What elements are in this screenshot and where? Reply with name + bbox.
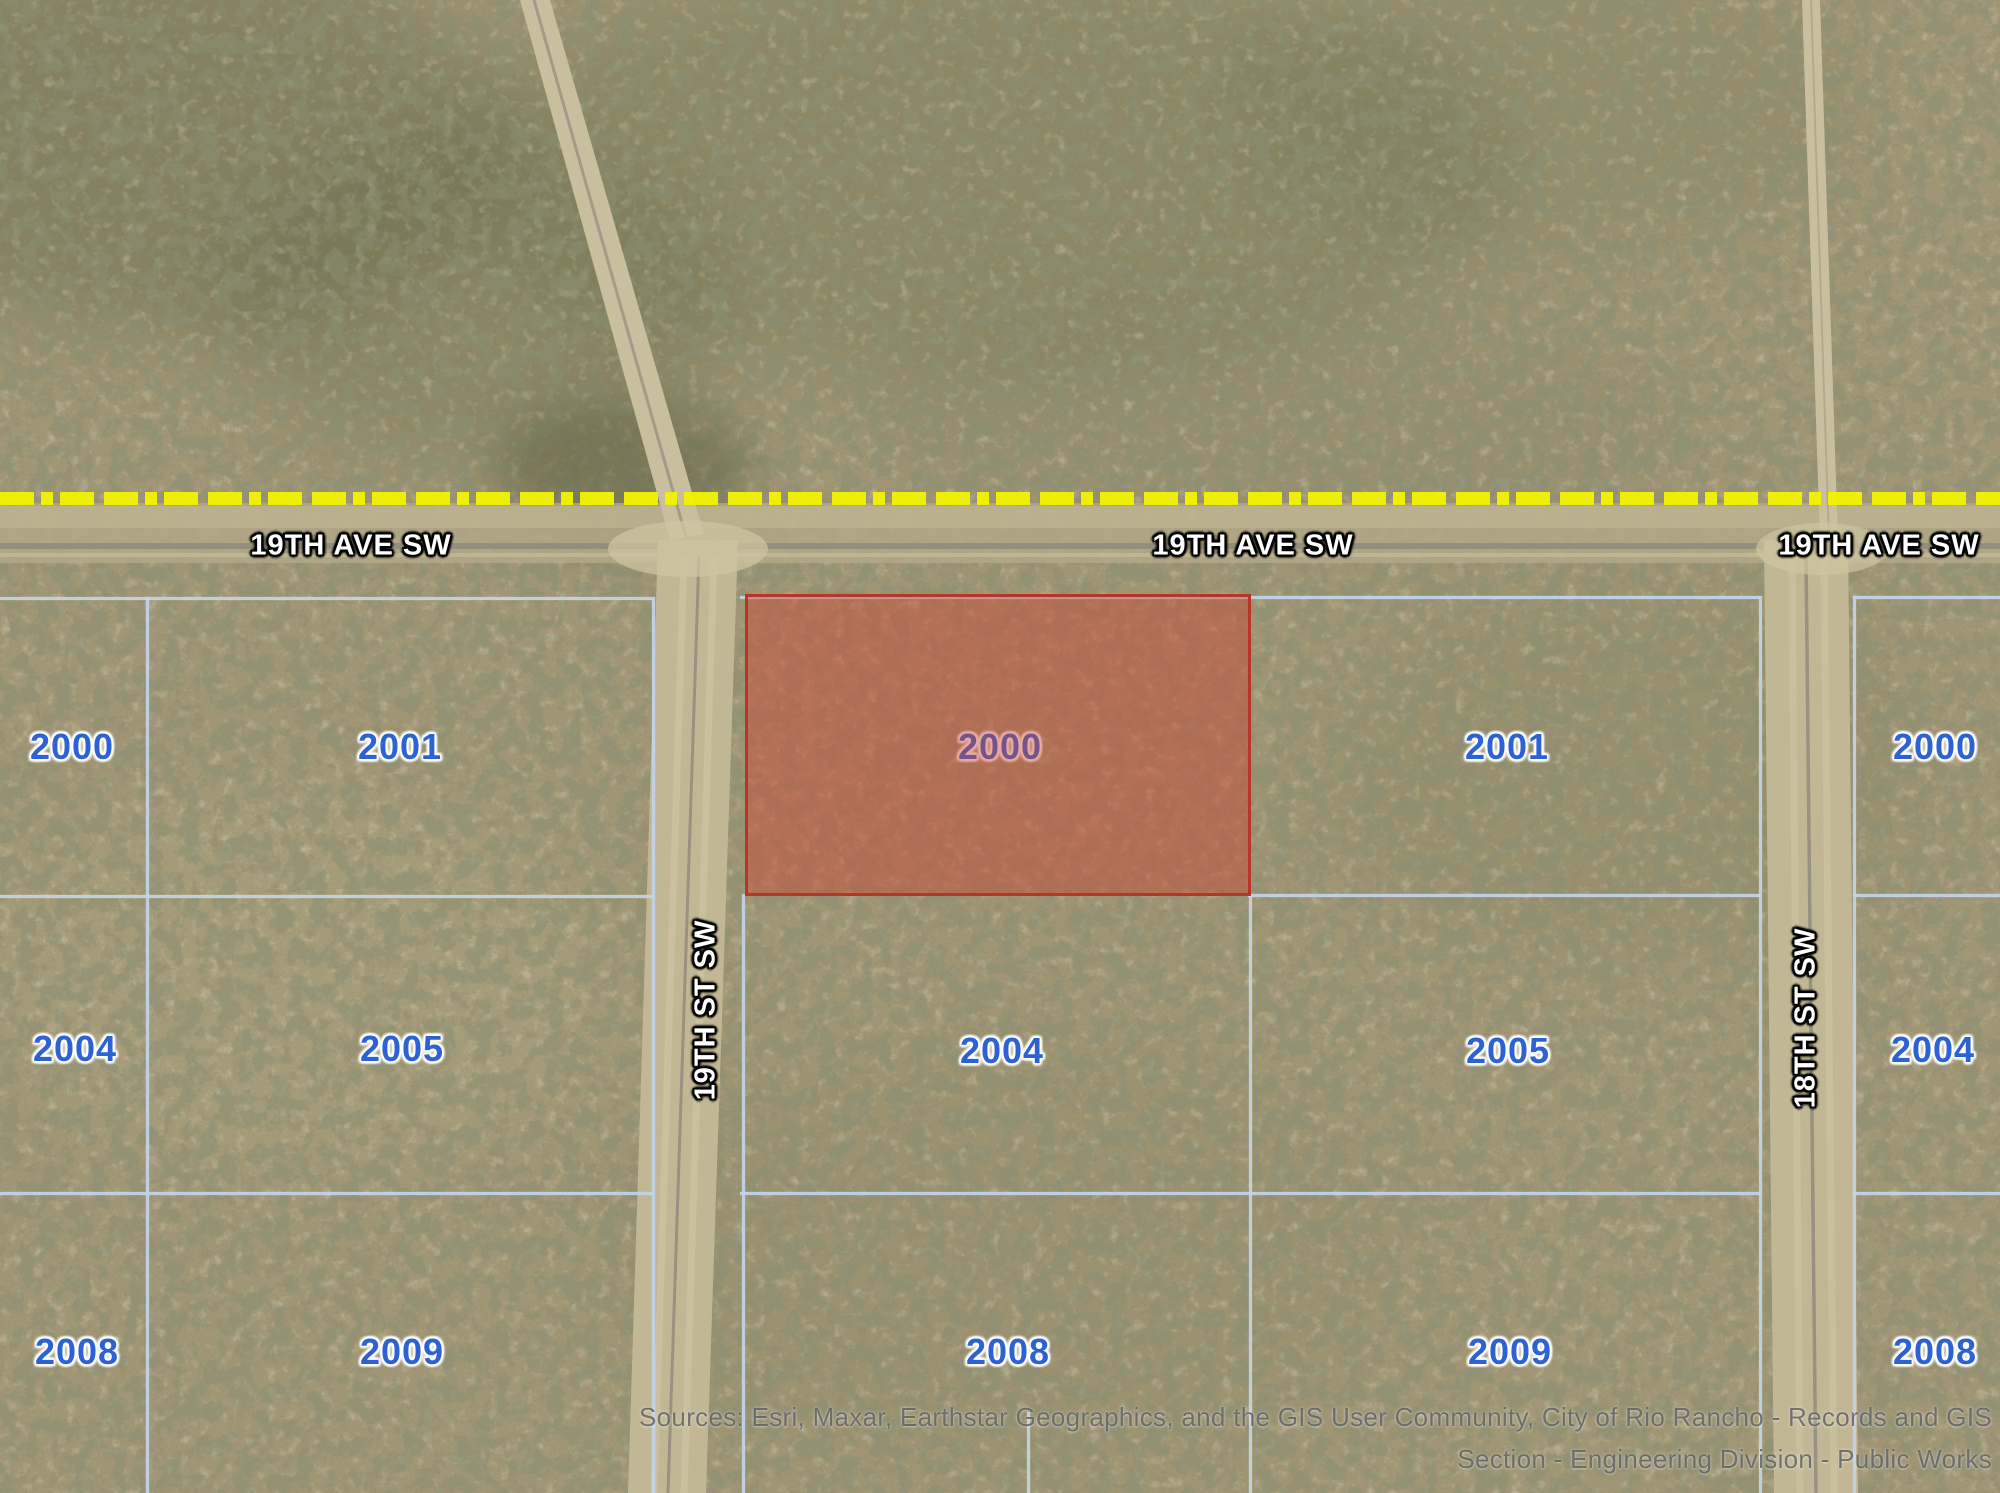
parcel-label: 2000: [1893, 726, 1977, 768]
parcel-label: 2004: [33, 1028, 117, 1070]
parcel-label: 2008: [35, 1331, 119, 1373]
parcel-label: 2005: [1466, 1030, 1550, 1072]
parcel-label: 2001: [358, 726, 442, 768]
parcel-label: 2004: [1891, 1029, 1975, 1071]
street-label-18th-st-sw: 18TH ST SW: [1790, 928, 1823, 1109]
map-attribution: Sources: Esri, Maxar, Earthstar Geograph…: [639, 1402, 1992, 1433]
parcel-label: 2000: [30, 726, 114, 768]
street-label-19th-ave-sw: 19TH AVE SW: [1778, 530, 1979, 563]
parcel-label: 2001: [1465, 726, 1549, 768]
parcel-label: 2008: [1893, 1331, 1977, 1373]
parcel-label: 2009: [360, 1331, 444, 1373]
parcel-label: 2008: [966, 1331, 1050, 1373]
street-label-19th-ave-sw: 19TH AVE SW: [250, 530, 451, 563]
street-label-19th-st-sw: 19TH ST SW: [690, 920, 723, 1101]
selected-parcel-highlight[interactable]: [745, 594, 1251, 896]
parcel-label: 2009: [1468, 1331, 1552, 1373]
map-attribution: Section - Engineering Division - Public …: [1457, 1444, 1992, 1475]
parcel-label: 2005: [360, 1028, 444, 1070]
map-canvas[interactable]: 2000 2000 2001 2001 2000 2004 2005 2004 …: [0, 0, 2000, 1493]
parcel-label: 2004: [960, 1030, 1044, 1072]
street-label-19th-ave-sw: 19TH AVE SW: [1152, 530, 1353, 563]
